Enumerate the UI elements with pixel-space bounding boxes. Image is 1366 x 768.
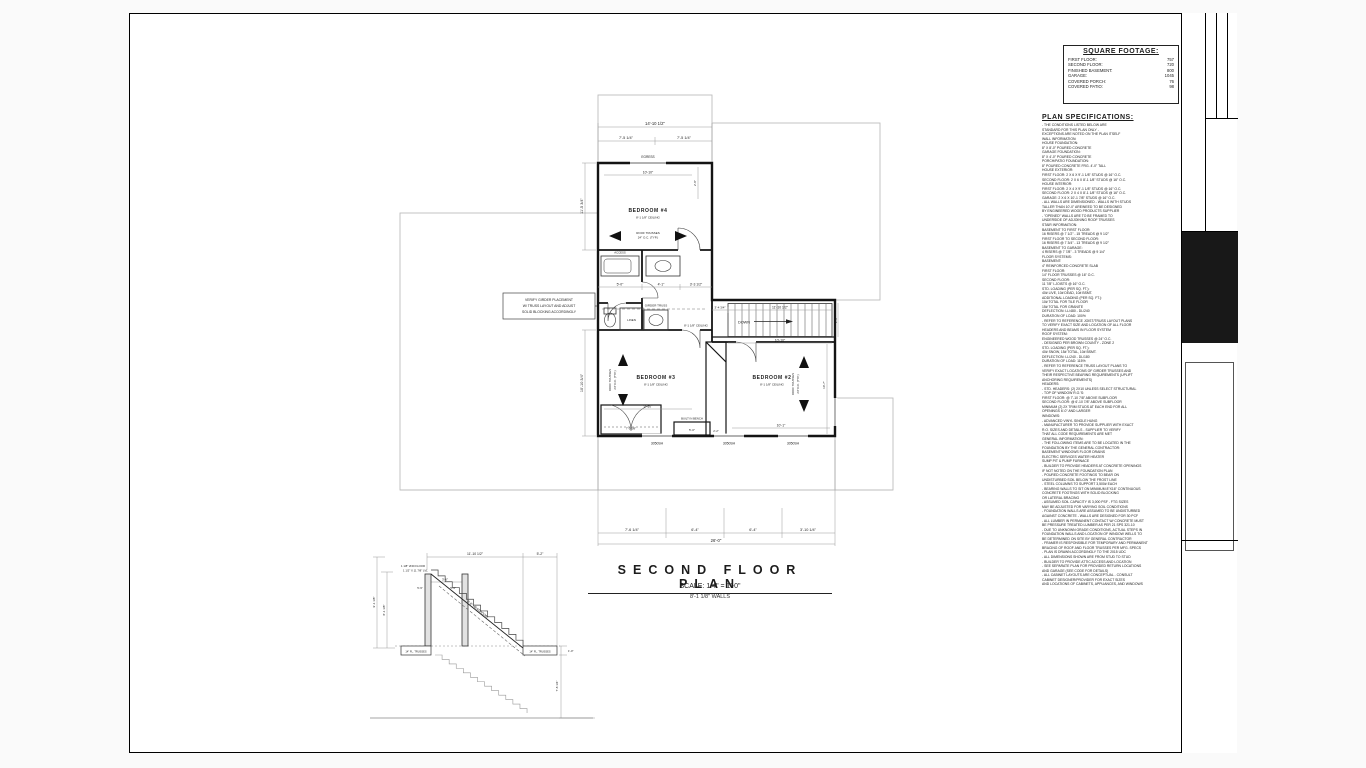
truss-note: 24" O.C. (TYP.) <box>613 370 617 389</box>
dim: 2'-8" <box>834 317 838 323</box>
dim: 1'-0" <box>568 649 574 653</box>
dim: 7'-8 1/4" <box>555 681 559 692</box>
dim: 8'-1 1/8" <box>382 605 386 616</box>
second-floor-plan-drawing: DOWN BEDROOM #4 <box>380 60 905 560</box>
dim: 5'-9" <box>417 586 423 590</box>
sqft-row: COVERED PATIO: 98 <box>1068 84 1174 89</box>
title-block-info <box>1182 13 1238 232</box>
bedroom3-label: BEDROOM #3 <box>636 375 675 381</box>
girder-truss-label: GIRDER TRUSS <box>645 304 668 308</box>
dim: 3'-6" <box>442 578 448 582</box>
smart-logo-box <box>1182 232 1238 343</box>
dim: 6'-4" <box>749 528 757 532</box>
dim: 14'-10 1/2" <box>645 121 665 126</box>
dim: 2'-2" <box>713 429 719 433</box>
window-size-label: 3050SH <box>651 442 664 446</box>
hall-ceiling-label: 8'-1 1/8" CEILING <box>684 324 708 328</box>
dim: 5'-9" <box>450 586 456 590</box>
second-floor-walls <box>598 163 835 436</box>
dim: 5'-2" <box>537 552 545 556</box>
truss-note: 24" O.C. (TYP.) <box>796 374 800 393</box>
stair-section-detail: 11'-10 1/2" 5'-2" 9'-1 1/8" 8'-1 1/8" 3'… <box>365 540 595 750</box>
dim: 9'-1 1/8" <box>372 597 376 608</box>
dim: 4'-1" <box>658 283 666 287</box>
dim: 11'-5 3/4" <box>580 197 584 213</box>
verify-girder-note: VERIFY GIRDER PLACEMENT W/ TRUSS LAYOUT … <box>503 293 597 319</box>
dim: 10'-10" <box>775 339 786 343</box>
verify-note-line: SOLID BLOCKING ACCORDINGLY <box>522 310 577 314</box>
verify-note-line: W/ TRUSS LAYOUT AND ADJUST <box>523 304 576 308</box>
stringer-label: 1 1/2" X 11 7/8" LVL <box>403 569 428 573</box>
dim: 6'-4" <box>691 528 699 532</box>
dim: 11'-10 1/2" <box>467 552 484 556</box>
plan-walls-note: 8'-1 1/8" WALLS <box>588 594 832 600</box>
verify-note-line: VERIFY GIRDER PLACEMENT <box>525 298 573 302</box>
sqft-value: 98 <box>1169 84 1174 89</box>
square-footage-box: SQUARE FOOTAGE: FIRST FLOOR: 757 SECOND … <box>1063 45 1179 104</box>
bedroom4-ceiling: 8'-1 1/8" CEILING <box>636 216 660 220</box>
plan-specifications-title: PLAN SPECIFICATIONS: <box>1042 114 1180 121</box>
title-block: CUSTOM DESIGNED FOR: SMART CUSTOM HOMES … <box>1181 13 1237 753</box>
dim: 11'-10 1/2" <box>772 306 789 310</box>
dim: 7'-5 5/8" <box>626 427 636 431</box>
dim: 26'-0" <box>711 538 722 543</box>
stair-structure <box>370 570 593 718</box>
dim: 2'-8" <box>693 180 697 186</box>
dim: 10'-1" <box>777 424 786 428</box>
bedroom3-ceiling: 8'-1 1/8" CEILING <box>644 383 668 387</box>
dim: 10'-10 3/4" <box>580 373 584 392</box>
dim: 7'-6 1/4" <box>625 528 640 532</box>
subfloor-label: 1 1/8" 2ND FLOOR <box>401 564 425 568</box>
bedroom4-label: BEDROOM #4 <box>628 208 667 214</box>
truss-note: ROOF TRUSSES <box>791 373 795 395</box>
drawing-page: SQUARE FOOTAGE: FIRST FLOOR: 757 SECOND … <box>0 0 1366 768</box>
square-footage-title: SQUARE FOOTAGE: <box>1068 48 1174 55</box>
truss-note: 24" O.C. (TYP.) <box>638 236 659 240</box>
plan-specifications-text: - THE CONDITIONS LISTED BELOW ARE STANDA… <box>1042 123 1180 587</box>
dim: 9'-10" <box>644 405 653 409</box>
egress-label: EGRESS <box>641 155 654 159</box>
down-label: DOWN <box>738 321 750 325</box>
stair-dim-labels: 11'-10 1/2" 5'-2" 9'-1 1/8" 8'-1 1/8" 3'… <box>372 552 574 691</box>
linen-label: LINEN <box>627 318 636 322</box>
dim: 3'-3 1/2" <box>690 283 703 287</box>
bedroom2-label: BEDROOM #2 <box>752 375 791 381</box>
truss-note: ROOF TRUSSES <box>636 231 660 235</box>
window-size-label: 3050SH <box>723 442 736 446</box>
window-size-label: 3050SH <box>787 442 800 446</box>
truss-note: ROOF TRUSSES <box>608 369 612 391</box>
dim: 7'-5 1/4" <box>677 136 692 140</box>
stair-dim-lines <box>373 553 595 718</box>
dim: 10'-10" <box>643 171 654 175</box>
bedroom2-ceiling: 8'-1 1/8" CEILING <box>760 383 784 387</box>
floor-truss-label: 14" FL. TRUSSES <box>529 650 550 654</box>
built-in-bench-label: BUILT IN BENCH <box>681 417 703 421</box>
plan-scale: SCALE: 1/4" = 1'-0" <box>588 583 832 590</box>
dim: 5'-0" <box>617 283 625 287</box>
dim: 3'-10 1/4" <box>800 528 817 532</box>
important-note-box <box>1185 362 1234 551</box>
floor-truss-label: 14" FL. TRUSSES <box>405 650 426 654</box>
dim: 5'-0" <box>689 428 695 432</box>
dim: 10'-7" <box>822 381 826 389</box>
headroom-label: 6'-8" HEADROOM <box>466 599 489 619</box>
plan-specifications: PLAN SPECIFICATIONS: - THE CONDITIONS LI… <box>1042 114 1180 570</box>
sqft-label: COVERED PATIO: <box>1068 84 1103 89</box>
dim: 7'-5 1/4" <box>619 136 634 140</box>
dim: 3'-4 3/4" <box>715 306 726 310</box>
access-label: ACCESS <box>614 251 626 255</box>
supplier-section <box>1182 540 1238 753</box>
